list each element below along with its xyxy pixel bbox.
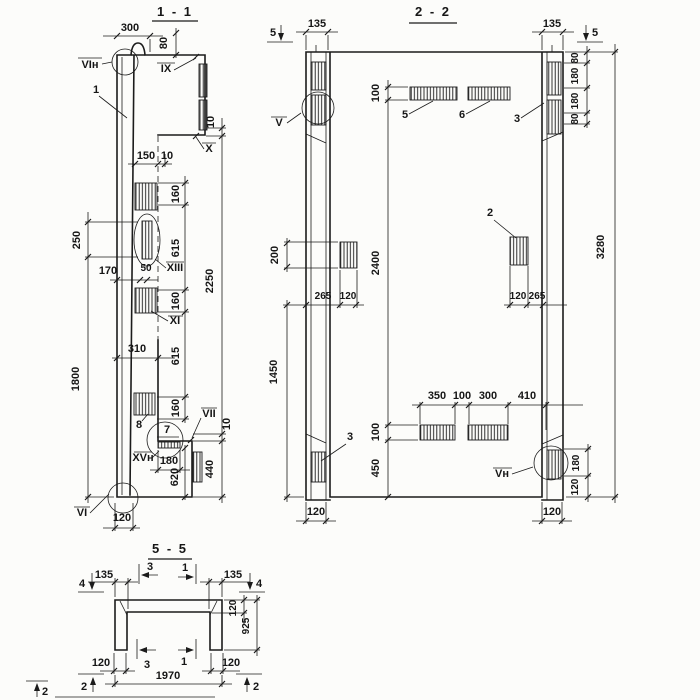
s22-left-plate-bottom xyxy=(311,452,326,482)
dim-135-right: 135 xyxy=(543,18,561,30)
dim-300: 300 xyxy=(121,22,139,34)
s22-bar-bottom-a xyxy=(420,425,455,440)
dim-120-mid-right: 120 xyxy=(510,291,527,302)
dim-120: 120 xyxy=(113,512,131,524)
dim-180-b: 180 xyxy=(570,92,581,109)
dim-120-br: 120 xyxy=(570,478,581,495)
dim-265-left: 265 xyxy=(315,291,332,302)
s22-marker-5-right: 5 xyxy=(592,27,598,39)
dim-170: 170 xyxy=(99,265,117,277)
s55-marker-2-right: 2 xyxy=(253,681,259,693)
s55-marker-1-top: 1 xyxy=(182,562,188,574)
dim-1450: 1450 xyxy=(268,360,280,384)
s11-plate-lower xyxy=(134,393,155,415)
callout-5: 5 xyxy=(402,109,408,121)
s55-marker-2-corner: 2 xyxy=(42,686,48,698)
callout-8: 8 xyxy=(136,419,142,431)
callout-vi: VI xyxy=(77,507,87,519)
callout-3-bottom: 3 xyxy=(347,431,353,443)
callout-x: X xyxy=(205,143,213,155)
dim-120-s55: 120 xyxy=(228,599,239,616)
dim-120-bottom-right: 120 xyxy=(543,506,561,518)
callout-7: 7 xyxy=(164,424,170,436)
dim-135-left: 135 xyxy=(308,18,326,30)
s22-title: 2 - 2 xyxy=(415,4,451,19)
callout-v: V xyxy=(275,117,283,129)
section-1-1: 1 - 1 300 80 VIн 1 IX 10 X 150 10 160 61… xyxy=(70,4,233,531)
s11-angle-item7 xyxy=(158,442,180,448)
s11-detail-circle-bottom xyxy=(108,483,138,513)
s22-plate-item2-left xyxy=(340,242,357,268)
callout-xi: XI xyxy=(170,315,180,327)
drawing-canvas: 1 - 1 300 80 VIн 1 IX 10 X 150 10 160 61… xyxy=(0,0,700,700)
dim-80-b: 80 xyxy=(570,113,581,125)
s55-marker-3-bottom: 3 xyxy=(144,659,150,671)
dim-120-bottom-left: 120 xyxy=(307,506,325,518)
s22-left-plate-b xyxy=(311,95,326,125)
s55-marker-1-bottom: 1 xyxy=(181,656,187,668)
dim-100-chain: 100 xyxy=(453,390,471,402)
dim-10-bottom: 10 xyxy=(221,418,233,430)
s11-slot-insert xyxy=(142,221,152,259)
s22-dim-ticks xyxy=(284,29,618,524)
dim-120-s55-br: 120 xyxy=(222,657,240,669)
dim-1970: 1970 xyxy=(156,670,180,682)
dim-180-a: 180 xyxy=(570,67,581,84)
s55-marker-3-top: 3 xyxy=(147,561,153,573)
s11-plate-upper xyxy=(135,183,157,210)
callout-ix: IX xyxy=(161,63,172,75)
s11-plate-bottom-right xyxy=(193,452,202,482)
dim-440: 440 xyxy=(204,460,216,478)
dim-160-c: 160 xyxy=(170,399,182,417)
dim-160-b: 160 xyxy=(170,292,182,310)
dim-135-s55-right: 135 xyxy=(224,569,242,581)
dim-180: 180 xyxy=(160,455,178,467)
callout-vii: VII xyxy=(202,408,215,420)
dim-350: 350 xyxy=(428,390,446,402)
dim-1800: 1800 xyxy=(70,367,82,391)
dim-200: 200 xyxy=(269,246,281,264)
s22-bar-bottom-b xyxy=(468,425,508,440)
dim-180-br: 180 xyxy=(571,454,582,471)
dim-615-b: 615 xyxy=(170,347,182,365)
callout-xiii: XIII xyxy=(167,262,184,274)
callout-xvn: XVн xyxy=(132,452,153,464)
dim-3280: 3280 xyxy=(595,235,607,259)
dim-2250: 2250 xyxy=(204,269,216,293)
section-5-5: 5 - 5 135 135 4 4 3 1 120 925 120 120 19… xyxy=(26,541,265,698)
s11-panel-outline xyxy=(117,43,205,497)
callout-3-top: 3 xyxy=(514,113,520,125)
s22-right-plate-a xyxy=(547,62,561,95)
dim-310: 310 xyxy=(128,343,146,355)
s11-plate-ix-a xyxy=(199,64,207,97)
s55-marker-4-left: 4 xyxy=(79,578,86,590)
dim-80-a: 80 xyxy=(570,52,581,64)
s11-plate-middle xyxy=(135,288,157,313)
s55-channel-outline xyxy=(115,600,222,650)
s55-marker-lines xyxy=(26,564,265,697)
dim-10-top: 10 xyxy=(205,116,217,128)
s22-dim-lines xyxy=(283,32,615,521)
s22-right-plate-b xyxy=(547,100,561,134)
dim-150: 150 xyxy=(137,150,155,162)
s55-title: 5 - 5 xyxy=(152,541,188,556)
callout-2: 2 xyxy=(487,207,493,219)
dim-100-bottom: 100 xyxy=(370,423,382,441)
dim-250: 250 xyxy=(71,231,83,249)
s22-plate-item2-right xyxy=(510,237,528,265)
dim-120-left: 120 xyxy=(340,291,357,302)
dim-925: 925 xyxy=(241,617,252,634)
dim-615-a: 615 xyxy=(170,239,182,257)
s55-marker-2-left: 2 xyxy=(81,681,87,693)
dim-10-w: 10 xyxy=(161,150,173,162)
callout-6: 6 xyxy=(459,109,465,121)
dim-135-s55-left: 135 xyxy=(95,569,113,581)
dim-2400: 2400 xyxy=(370,251,382,275)
s22-left-plate-a xyxy=(311,62,326,90)
dim-620: 620 xyxy=(169,468,181,486)
blueprint-page: 1 - 1 300 80 VIн 1 IX 10 X 150 10 160 61… xyxy=(0,0,700,700)
dim-120-s55-bl: 120 xyxy=(92,657,110,669)
dim-265-right: 265 xyxy=(529,291,546,302)
dim-50: 50 xyxy=(140,263,152,274)
dim-80: 80 xyxy=(158,37,170,49)
dim-300-chain: 300 xyxy=(479,390,497,402)
s55-chamfer-lines xyxy=(120,601,217,615)
s55-marker-4-right: 4 xyxy=(256,578,263,590)
dim-100-top: 100 xyxy=(370,84,382,102)
callout-1: 1 xyxy=(93,84,99,96)
dim-160-a: 160 xyxy=(170,185,182,203)
dim-450: 450 xyxy=(370,459,382,477)
section-2-2: 2 - 2 5 5 135 135 V 80 180 180 80 100 24… xyxy=(267,4,618,524)
s22-bar-item5 xyxy=(410,87,457,100)
s22-right-plate-bottom xyxy=(547,450,561,479)
s11-title: 1 - 1 xyxy=(157,4,193,19)
callout-vin: VIн xyxy=(81,59,98,71)
s22-marker-5-left: 5 xyxy=(270,27,276,39)
s11-leader-lines xyxy=(74,58,217,513)
s22-bar-item6 xyxy=(468,87,510,100)
callout-vn: Vн xyxy=(495,468,509,480)
dim-410: 410 xyxy=(518,390,536,402)
